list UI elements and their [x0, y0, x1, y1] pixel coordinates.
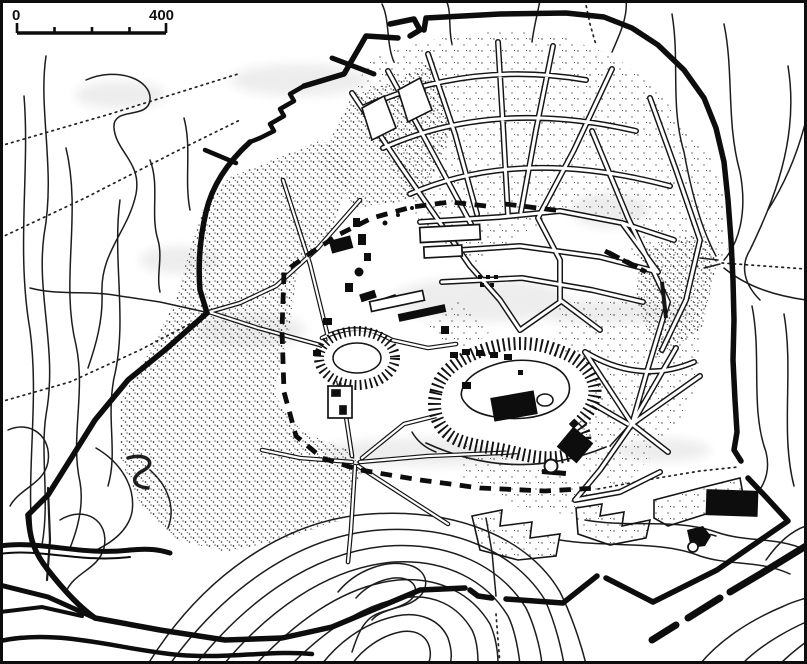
- khan-building: [420, 224, 481, 242]
- western-mound-plateau: [333, 343, 381, 373]
- scanned-city-plan-page: 0 400: [0, 0, 807, 664]
- round-structure: [545, 460, 558, 473]
- city-plan-map: 0 400: [0, 0, 807, 664]
- wall-kink: [390, 19, 420, 36]
- scale-label-400: 400: [149, 7, 174, 24]
- scale-bar: 0 400: [12, 7, 174, 33]
- east-gate-building: [706, 489, 759, 517]
- scale-label-zero: 0: [12, 7, 20, 24]
- western-mound: [319, 331, 395, 385]
